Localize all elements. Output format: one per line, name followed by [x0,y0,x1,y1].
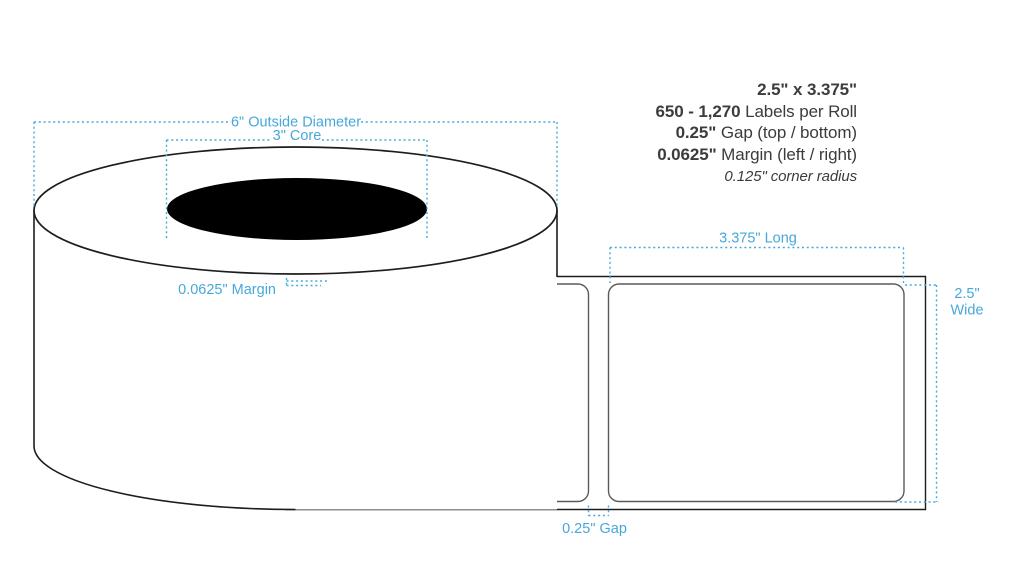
label-roll-diagram: 6" Outside Diameter 3" Core 0.0625" Marg… [0,0,1024,580]
spec-size-value: 2.5" x 3.375" [757,80,857,99]
spec-corner-radius-note: 0.125" corner radius [724,168,857,185]
spec-margin-value: 0.0625" [657,145,716,164]
label-2 [609,284,905,502]
spec-text-block: 2.5" x 3.375" 650 - 1,270 Labels per Rol… [656,79,857,188]
spec-gap-value: 0.25" [676,123,717,142]
label-width-caption-line1: 2.5" [954,286,979,302]
diagram-canvas: 6" Outside Diameter 3" Core 0.0625" Marg… [0,0,1024,580]
spec-margin-label: Margin (left / right) [717,145,857,164]
spec-count-value: 650 - 1,270 [656,102,741,121]
spec-count-line: 650 - 1,270 Labels per Roll [656,101,857,123]
spec-gap-label: Gap (top / bottom) [716,123,857,142]
spec-size-line: 2.5" x 3.375" [656,79,857,101]
margin-caption: 0.0625" Margin [178,282,276,298]
spec-gap-line: 0.25" Gap (top / bottom) [656,122,857,144]
label-length-caption: 3.375" Long [719,231,797,247]
roll-core-hole [167,178,427,240]
label-roll [34,147,557,510]
core-caption: 3" Core [273,128,322,144]
spec-corner-radius-line: 0.125" corner radius [656,165,857,188]
spec-margin-line: 0.0625" Margin (left / right) [656,144,857,166]
spec-count-label: Labels per Roll [740,102,857,121]
gap-caption: 0.25" Gap [562,521,627,537]
label-width-caption-line2: Wide [950,303,983,319]
